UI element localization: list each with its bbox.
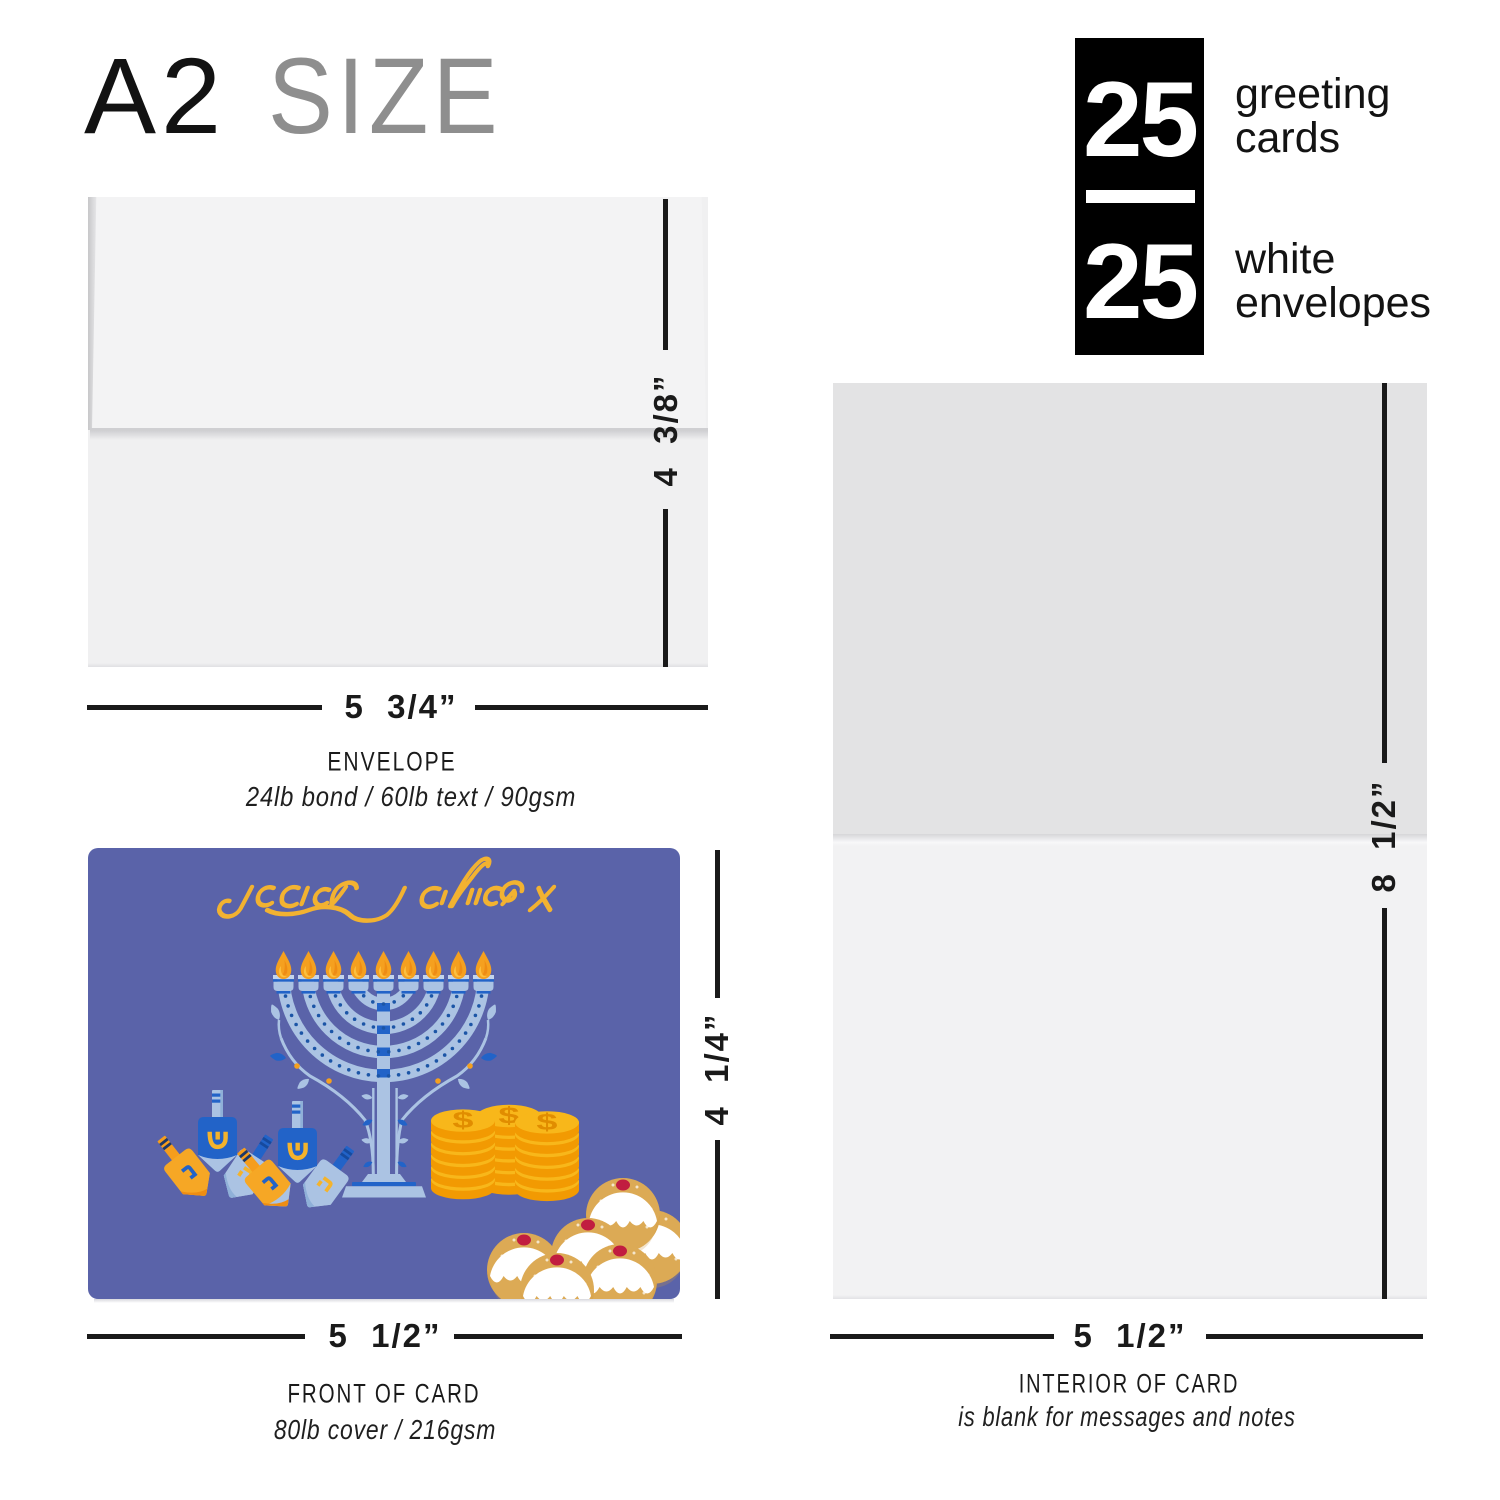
svg-text:$: $ [452, 1108, 473, 1133]
svg-text:$: $ [536, 1110, 557, 1135]
